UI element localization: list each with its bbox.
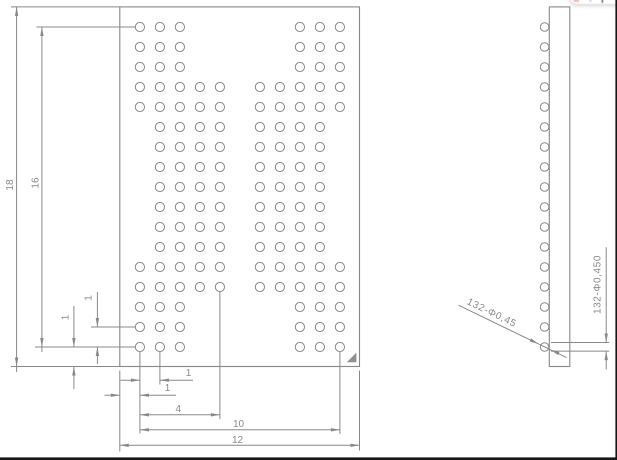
svg-text:16: 16 [30, 177, 41, 189]
svg-text:132-Φ0,45: 132-Φ0,45 [465, 297, 518, 330]
svg-text:1: 1 [165, 383, 171, 394]
svg-text:1: 1 [60, 314, 71, 320]
svg-text:1: 1 [83, 295, 94, 301]
svg-text:18: 18 [5, 179, 16, 191]
svg-text:132-Φ0,450: 132-Φ0,450 [593, 255, 604, 314]
svg-text:1: 1 [186, 368, 192, 379]
svg-text:12: 12 [232, 435, 244, 446]
svg-text:10: 10 [233, 419, 245, 430]
svg-text:4: 4 [176, 404, 182, 415]
